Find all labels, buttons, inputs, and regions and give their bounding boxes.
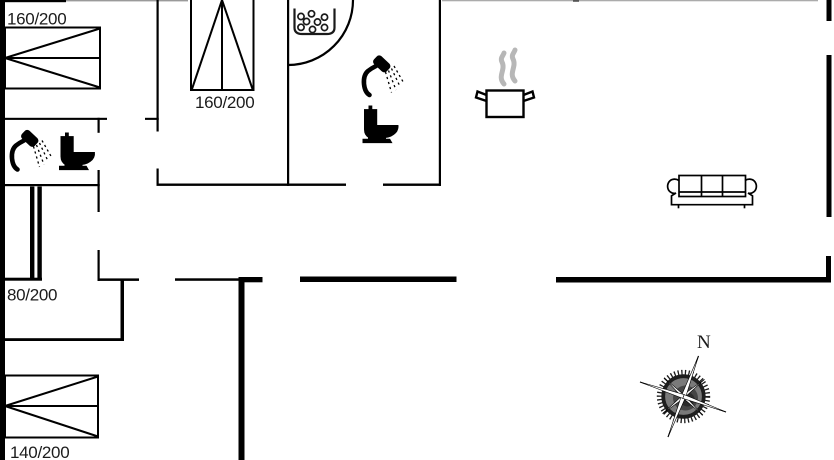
svg-text:N: N <box>697 332 711 353</box>
svg-text:160/200: 160/200 <box>195 93 254 112</box>
svg-text:140/200: 140/200 <box>10 443 69 460</box>
svg-text:80/200: 80/200 <box>7 286 57 305</box>
svg-text:160/200: 160/200 <box>7 10 66 29</box>
